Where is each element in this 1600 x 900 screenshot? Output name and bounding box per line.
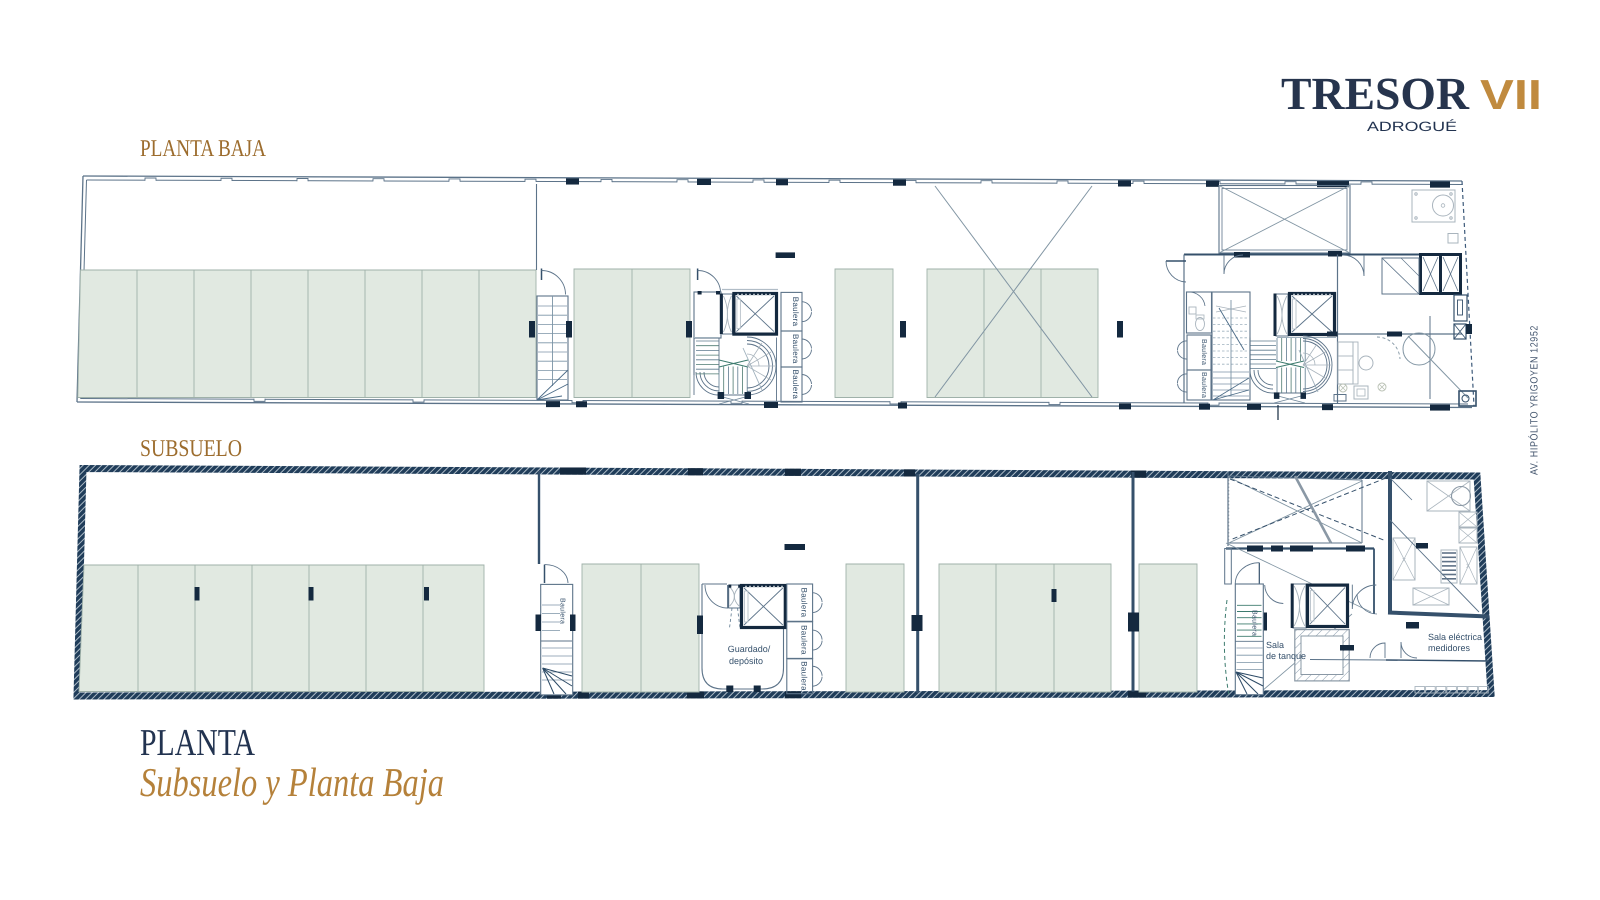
svg-text:Baulera: Baulera (791, 334, 800, 364)
svg-text:TRESOR: TRESOR (1281, 68, 1470, 119)
svg-text:ADROGUÉ: ADROGUÉ (1367, 119, 1457, 134)
svg-text:Subsuelo y Planta Baja: Subsuelo y Planta Baja (140, 759, 444, 805)
svg-text:depósito: depósito (729, 656, 763, 666)
svg-text:PLANTA BAJA: PLANTA BAJA (140, 136, 267, 162)
svg-text:SUBSUELO: SUBSUELO (140, 436, 242, 462)
svg-text:X: X (1466, 563, 1470, 570)
svg-text:AV. HIPÓLITO YRIGOYEN 12952: AV. HIPÓLITO YRIGOYEN 12952 (1528, 325, 1541, 475)
svg-text:PLANTA: PLANTA (140, 722, 255, 764)
svg-text:Baulera: Baulera (799, 661, 808, 691)
svg-text:Baulera: Baulera (1251, 610, 1259, 636)
svg-text:Baulera: Baulera (799, 625, 808, 655)
svg-text:medidores: medidores (1428, 643, 1471, 653)
svg-text:de tanque: de tanque (1266, 651, 1306, 661)
svg-text:X: X (1402, 557, 1406, 564)
svg-text:Baulera: Baulera (799, 588, 808, 618)
svg-text:Baulera: Baulera (791, 297, 800, 327)
svg-text:Baulera: Baulera (791, 370, 800, 400)
svg-text:VII: VII (1480, 71, 1542, 118)
svg-text:Baulera: Baulera (1200, 372, 1208, 398)
svg-text:Baulera: Baulera (559, 598, 567, 624)
svg-text:Sala: Sala (1266, 640, 1284, 650)
svg-text:Sala eléctrica: Sala eléctrica (1428, 632, 1482, 642)
svg-text:Baulera: Baulera (1200, 339, 1208, 365)
svg-text:Guardado/: Guardado/ (728, 644, 771, 654)
